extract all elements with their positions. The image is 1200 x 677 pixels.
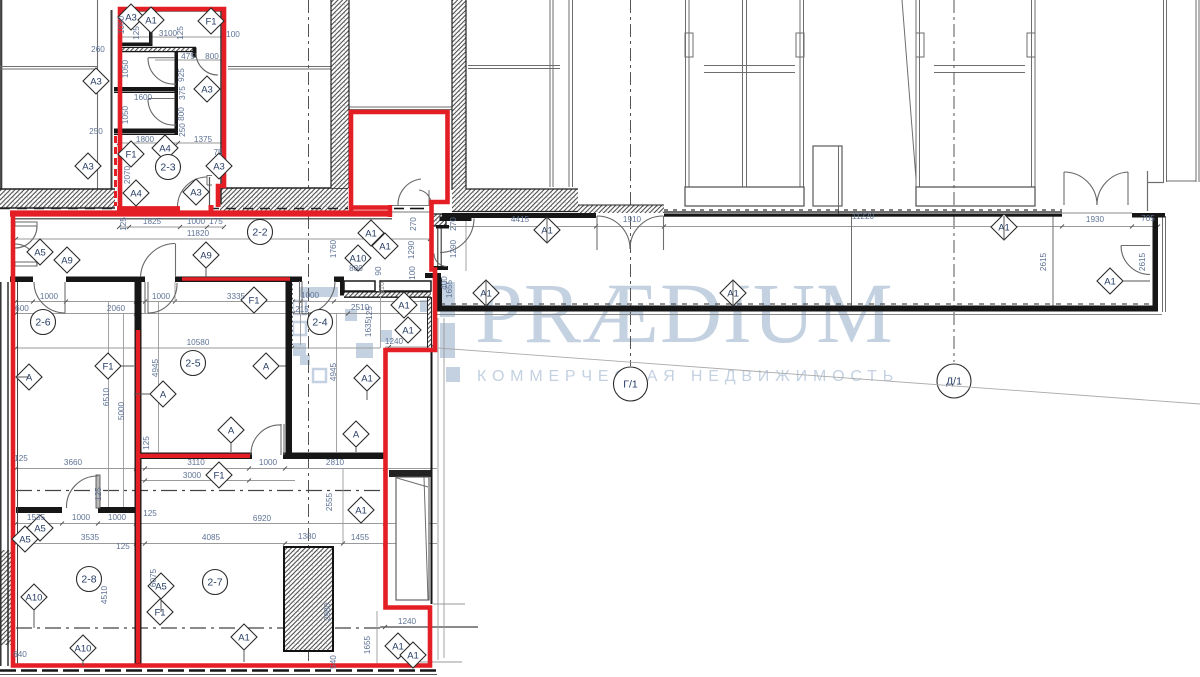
svg-text:125: 125 [116, 542, 130, 551]
svg-text:1050: 1050 [121, 105, 130, 124]
svg-text:A5: A5 [34, 523, 46, 534]
svg-text:125: 125 [176, 26, 185, 40]
svg-text:A: A [26, 372, 33, 383]
svg-text:6075: 6075 [149, 568, 158, 587]
svg-text:A1: A1 [398, 300, 410, 311]
svg-text:1910: 1910 [623, 215, 642, 224]
svg-text:A3: A3 [90, 76, 102, 87]
svg-text:A1: A1 [361, 373, 373, 384]
svg-text:A1: A1 [355, 505, 367, 516]
svg-text:1535: 1535 [27, 513, 46, 522]
svg-text:925: 925 [177, 68, 186, 82]
svg-text:F1: F1 [205, 16, 216, 27]
svg-text:A3: A3 [190, 187, 202, 198]
svg-text:1380: 1380 [298, 532, 317, 541]
svg-text:90: 90 [374, 266, 383, 276]
svg-text:270: 270 [409, 217, 418, 231]
svg-text:600: 600 [15, 304, 29, 313]
svg-text:A1: A1 [379, 241, 391, 252]
svg-text:2-3: 2-3 [160, 162, 175, 174]
svg-text:A: A [263, 361, 270, 372]
svg-text:800: 800 [177, 107, 186, 121]
svg-text:10580: 10580 [187, 338, 210, 347]
svg-text:F1: F1 [125, 149, 136, 160]
svg-text:A10: A10 [26, 592, 43, 603]
svg-text:A4: A4 [130, 188, 142, 199]
svg-text:1000: 1000 [72, 513, 91, 522]
svg-text:1455: 1455 [351, 533, 370, 542]
svg-text:1000: 1000 [259, 458, 278, 467]
svg-text:2615: 2615 [1039, 252, 1048, 271]
svg-text:F1: F1 [248, 295, 259, 306]
svg-text:A: A [228, 425, 235, 436]
svg-text:175: 175 [209, 217, 223, 226]
svg-text:A1: A1 [145, 15, 157, 26]
svg-text:A4: A4 [159, 143, 171, 154]
svg-text:1930: 1930 [1086, 215, 1105, 224]
svg-text:1375: 1375 [194, 135, 213, 144]
svg-text:1000: 1000 [108, 513, 127, 522]
svg-text:3100: 3100 [159, 29, 178, 38]
svg-text:2-7: 2-7 [207, 577, 222, 589]
svg-text:2070: 2070 [123, 165, 132, 184]
svg-text:3000: 3000 [183, 471, 202, 480]
svg-text:A3: A3 [213, 161, 225, 172]
svg-text:4085: 4085 [202, 533, 221, 542]
svg-text:1825: 1825 [143, 217, 162, 226]
svg-text:A: A [353, 429, 360, 440]
svg-text:1655: 1655 [363, 635, 372, 654]
svg-text:2-6: 2-6 [35, 317, 50, 329]
svg-text:1240: 1240 [398, 617, 417, 626]
svg-text:400: 400 [440, 276, 449, 290]
svg-text:270: 270 [449, 217, 458, 231]
svg-text:1240: 1240 [385, 337, 404, 346]
svg-text:2-4: 2-4 [312, 317, 327, 329]
svg-text:A: A [160, 389, 167, 400]
svg-text:A1: A1 [402, 325, 414, 336]
svg-text:310: 310 [377, 282, 386, 295]
svg-text:4415: 4415 [511, 215, 530, 224]
svg-text:A1: A1 [407, 650, 419, 661]
svg-text:2810: 2810 [326, 458, 345, 467]
svg-text:125: 125 [365, 306, 374, 320]
svg-text:75: 75 [213, 148, 223, 157]
svg-text:F1: F1 [102, 361, 113, 372]
svg-text:475: 475 [181, 52, 195, 61]
svg-text:125: 125 [142, 436, 151, 450]
svg-text:3335: 3335 [227, 292, 246, 301]
svg-text:1600: 1600 [134, 93, 153, 102]
svg-text:2-8: 2-8 [81, 574, 96, 586]
svg-text:1635: 1635 [364, 318, 373, 337]
svg-text:125: 125 [14, 454, 28, 463]
svg-text:4945: 4945 [151, 358, 160, 377]
svg-text:4510: 4510 [100, 585, 109, 604]
svg-text:6920: 6920 [253, 514, 272, 523]
svg-text:1000: 1000 [187, 217, 206, 226]
svg-text:375: 375 [178, 86, 187, 100]
svg-text:1000: 1000 [40, 292, 59, 301]
svg-text:11220: 11220 [852, 212, 875, 221]
svg-text:2-5: 2-5 [185, 358, 200, 370]
svg-text:A10: A10 [75, 643, 92, 654]
svg-text:540: 540 [329, 655, 338, 669]
svg-text:125: 125 [119, 217, 128, 231]
svg-text:A1: A1 [1104, 276, 1116, 287]
svg-text:1290: 1290 [407, 240, 416, 259]
svg-text:A3: A3 [125, 12, 137, 23]
svg-text:A1: A1 [365, 228, 377, 239]
svg-text:6510: 6510 [102, 387, 111, 406]
svg-text:5000: 5000 [117, 401, 126, 420]
svg-text:250: 250 [89, 127, 103, 136]
svg-text:705: 705 [1141, 214, 1155, 223]
svg-text:A9: A9 [61, 255, 73, 266]
svg-text:F1: F1 [154, 607, 165, 618]
svg-text:A10: A10 [350, 253, 367, 264]
svg-text:3110: 3110 [187, 458, 205, 467]
svg-text:F1: F1 [213, 470, 224, 481]
svg-text:A3: A3 [201, 84, 213, 95]
svg-text:11820: 11820 [187, 229, 210, 238]
svg-text:КОММЕРЧЕСКАЯ НЕДВИЖИМОСТЬ: КОММЕРЧЕСКАЯ НЕДВИЖИМОСТЬ [477, 368, 899, 385]
svg-text:125: 125 [132, 26, 141, 40]
svg-text:1800: 1800 [136, 135, 155, 144]
svg-text:3660: 3660 [64, 458, 83, 467]
svg-text:2060: 2060 [107, 304, 126, 313]
svg-text:2980: 2980 [323, 602, 332, 621]
svg-text:Г/1: Г/1 [623, 379, 638, 391]
svg-text:2555: 2555 [325, 492, 334, 511]
svg-text:1050: 1050 [121, 59, 130, 78]
svg-text:PRÆDIUM: PRÆDIUM [475, 265, 894, 361]
svg-text:215: 215 [295, 305, 309, 314]
svg-text:800: 800 [205, 52, 219, 61]
svg-text:1000: 1000 [152, 292, 171, 301]
svg-text:125: 125 [94, 487, 103, 501]
svg-text:A1: A1 [238, 632, 250, 643]
svg-text:1760: 1760 [329, 239, 338, 258]
svg-text:640: 640 [13, 650, 27, 659]
svg-text:4945: 4945 [329, 362, 338, 381]
svg-text:A3: A3 [82, 161, 94, 172]
svg-text:260: 260 [91, 45, 105, 54]
svg-text:A9: A9 [200, 250, 212, 261]
svg-text:A5: A5 [34, 247, 46, 258]
svg-text:1050: 1050 [117, 15, 126, 34]
svg-text:100: 100 [408, 266, 417, 280]
svg-text:100: 100 [226, 30, 240, 39]
svg-text:125: 125 [143, 509, 157, 518]
svg-text:880: 880 [349, 264, 363, 273]
svg-text:1290: 1290 [449, 239, 458, 258]
svg-text:1000: 1000 [301, 291, 320, 300]
svg-text:250: 250 [178, 123, 187, 137]
svg-text:A1: A1 [392, 641, 404, 652]
svg-text:2615: 2615 [1138, 252, 1147, 271]
svg-text:2-2: 2-2 [252, 227, 267, 239]
svg-text:A5: A5 [19, 534, 31, 545]
svg-text:3535: 3535 [81, 533, 100, 542]
